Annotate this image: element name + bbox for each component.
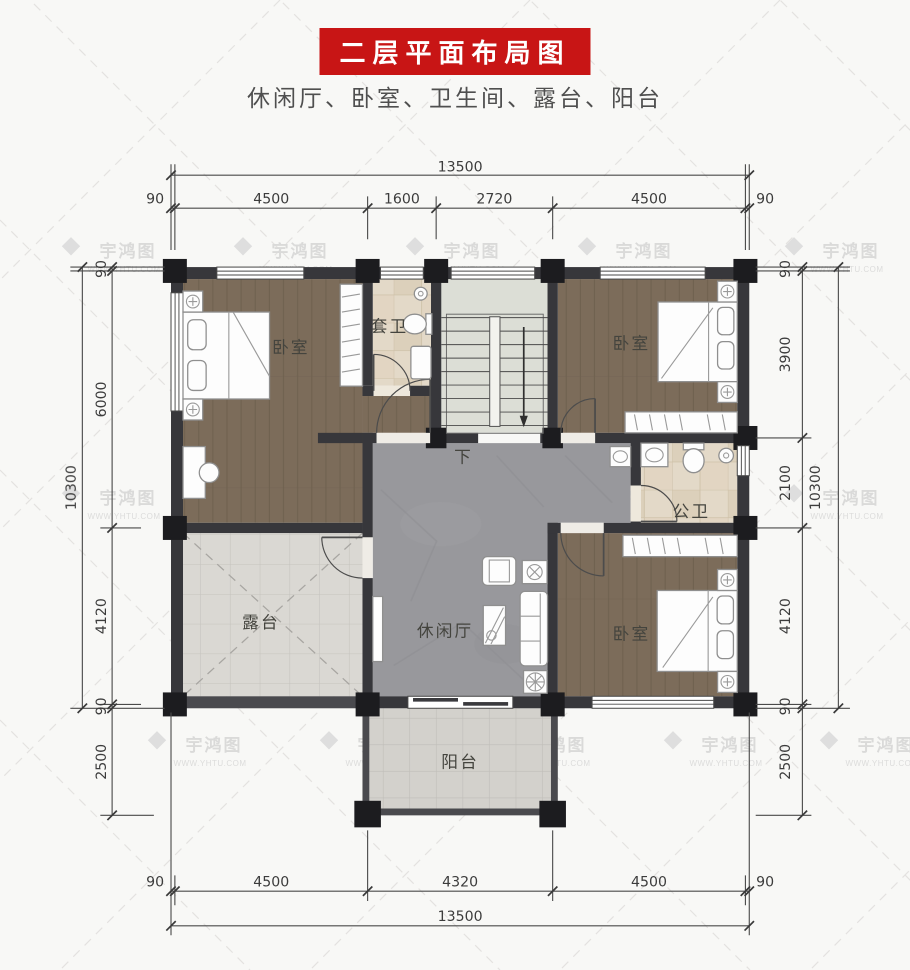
floor-vestibule: [362, 396, 431, 433]
dim-right-seg-2: 2100: [778, 465, 794, 501]
dim-left-seg-3: 90: [94, 697, 110, 715]
floor-plan-drawing: 卧室 套卫 卧室 公卫 休闲厅 露台 卧室 阳台 下 13500 90 4500…: [53, 145, 863, 946]
dim-left-seg-4: 2500: [94, 744, 110, 780]
label-bedroom-top-left: 卧室: [272, 338, 310, 357]
hall-three-seat-sofa: [520, 591, 547, 666]
balcony-column-right: [539, 801, 566, 828]
hall-tv-cabinet: [373, 596, 383, 661]
dim-top-seg-3: 2720: [476, 192, 512, 208]
label-terrace: 露台: [242, 613, 280, 632]
hall-wash-basin: [610, 447, 631, 467]
hall-plant: [524, 671, 548, 694]
shared-bath-shower-head: [719, 448, 734, 463]
window-top-bedroom-right: [600, 267, 705, 279]
dim-top-seg-1: 4500: [253, 192, 289, 208]
dim-top-seg-4: 4500: [631, 192, 667, 208]
dim-left-total: 10300: [64, 465, 80, 510]
shared-bath-vanity: [641, 443, 668, 467]
ensuite-shower-head: [414, 287, 427, 300]
balcony-column-left: [354, 801, 381, 828]
dim-right-total: 10300: [808, 465, 824, 510]
window-bottom-bedroom-right: [592, 696, 714, 708]
bed-top-right: [658, 302, 737, 382]
sliding-door-balcony: [408, 696, 513, 708]
nightstand-top-left-1: [183, 291, 203, 312]
dim-bottom-seg-3: 4500: [631, 874, 667, 890]
hall-side-table: [522, 560, 547, 583]
hall-single-sofa: [482, 557, 515, 586]
dim-top-total: 13500: [438, 160, 483, 176]
page-title-banner: 二层平面布局图: [319, 28, 590, 75]
label-balcony: 阳台: [441, 752, 479, 771]
dim-right-seg-3: 4120: [778, 598, 794, 634]
label-stair-down: 下: [454, 447, 473, 466]
window-left-bedroom: [171, 293, 183, 411]
bed-bottom-right: [657, 590, 737, 671]
dim-bottom-seg-1: 4500: [253, 874, 289, 890]
dim-left-seg-2: 4120: [94, 598, 110, 634]
page-title: 二层平面布局图: [339, 39, 570, 69]
wardrobe-top-left: [340, 284, 362, 386]
label-leisure-hall: 休闲厅: [417, 622, 474, 641]
svg-text:宇鸿图: 宇鸿图: [858, 735, 910, 755]
shared-bath-toilet: [683, 443, 704, 473]
dim-right-seg-4: 90: [778, 697, 794, 715]
dim-left-seg-1: 6000: [94, 381, 110, 417]
window-right-shared-bathroom: [737, 446, 749, 476]
wardrobe-bottom-right: [623, 535, 737, 556]
nightstand-bottom-right-1: [718, 569, 738, 590]
label-bedroom-top-right: 卧室: [613, 334, 651, 353]
hall-coffee-table: [483, 605, 505, 645]
label-bedroom-bottom-right: 卧室: [613, 624, 651, 643]
window-top-stairs: [451, 267, 535, 279]
dim-bottom-total: 13500: [438, 909, 483, 925]
floor-plan-page: 宇鸿图WWW.YHTU.COM 宇鸿图WWW.YHTU.COM 宇鸿图WWW.Y…: [0, 0, 910, 970]
window-top-ensuite: [380, 267, 423, 279]
dim-top-seg-5: 90: [756, 192, 774, 208]
dim-left-seg-0: 90: [94, 260, 110, 278]
dim-right-seg-0: 90: [778, 260, 794, 278]
wardrobe-top-right: [625, 412, 737, 433]
nightstand-top-right-1: [718, 281, 738, 302]
nightstand-top-left-2: [183, 399, 203, 420]
label-shared-bathroom: 公卫: [673, 502, 711, 521]
dim-bottom-seg-2: 4320: [442, 874, 478, 890]
dim-bottom-seg-4: 90: [756, 874, 774, 890]
nightstand-bottom-right-2: [718, 671, 738, 692]
dim-right-seg-1: 3900: [778, 336, 794, 372]
dim-right-seg-5: 2500: [778, 744, 794, 780]
dim-top-seg-2: 1600: [384, 192, 420, 208]
stair-divider: [490, 317, 500, 427]
window-top-bedroom-left: [217, 267, 304, 279]
page-subtitle: 休闲厅、卧室、卫生间、露台、阳台: [0, 79, 910, 113]
ensuite-shower-tray: [411, 346, 431, 379]
bed-top-left: [183, 312, 270, 399]
nightstand-top-right-2: [718, 382, 738, 403]
label-ensuite-bathroom: 套卫: [371, 317, 409, 336]
dim-bottom-seg-0: 90: [146, 874, 164, 890]
dim-top-seg-0: 90: [146, 192, 164, 208]
